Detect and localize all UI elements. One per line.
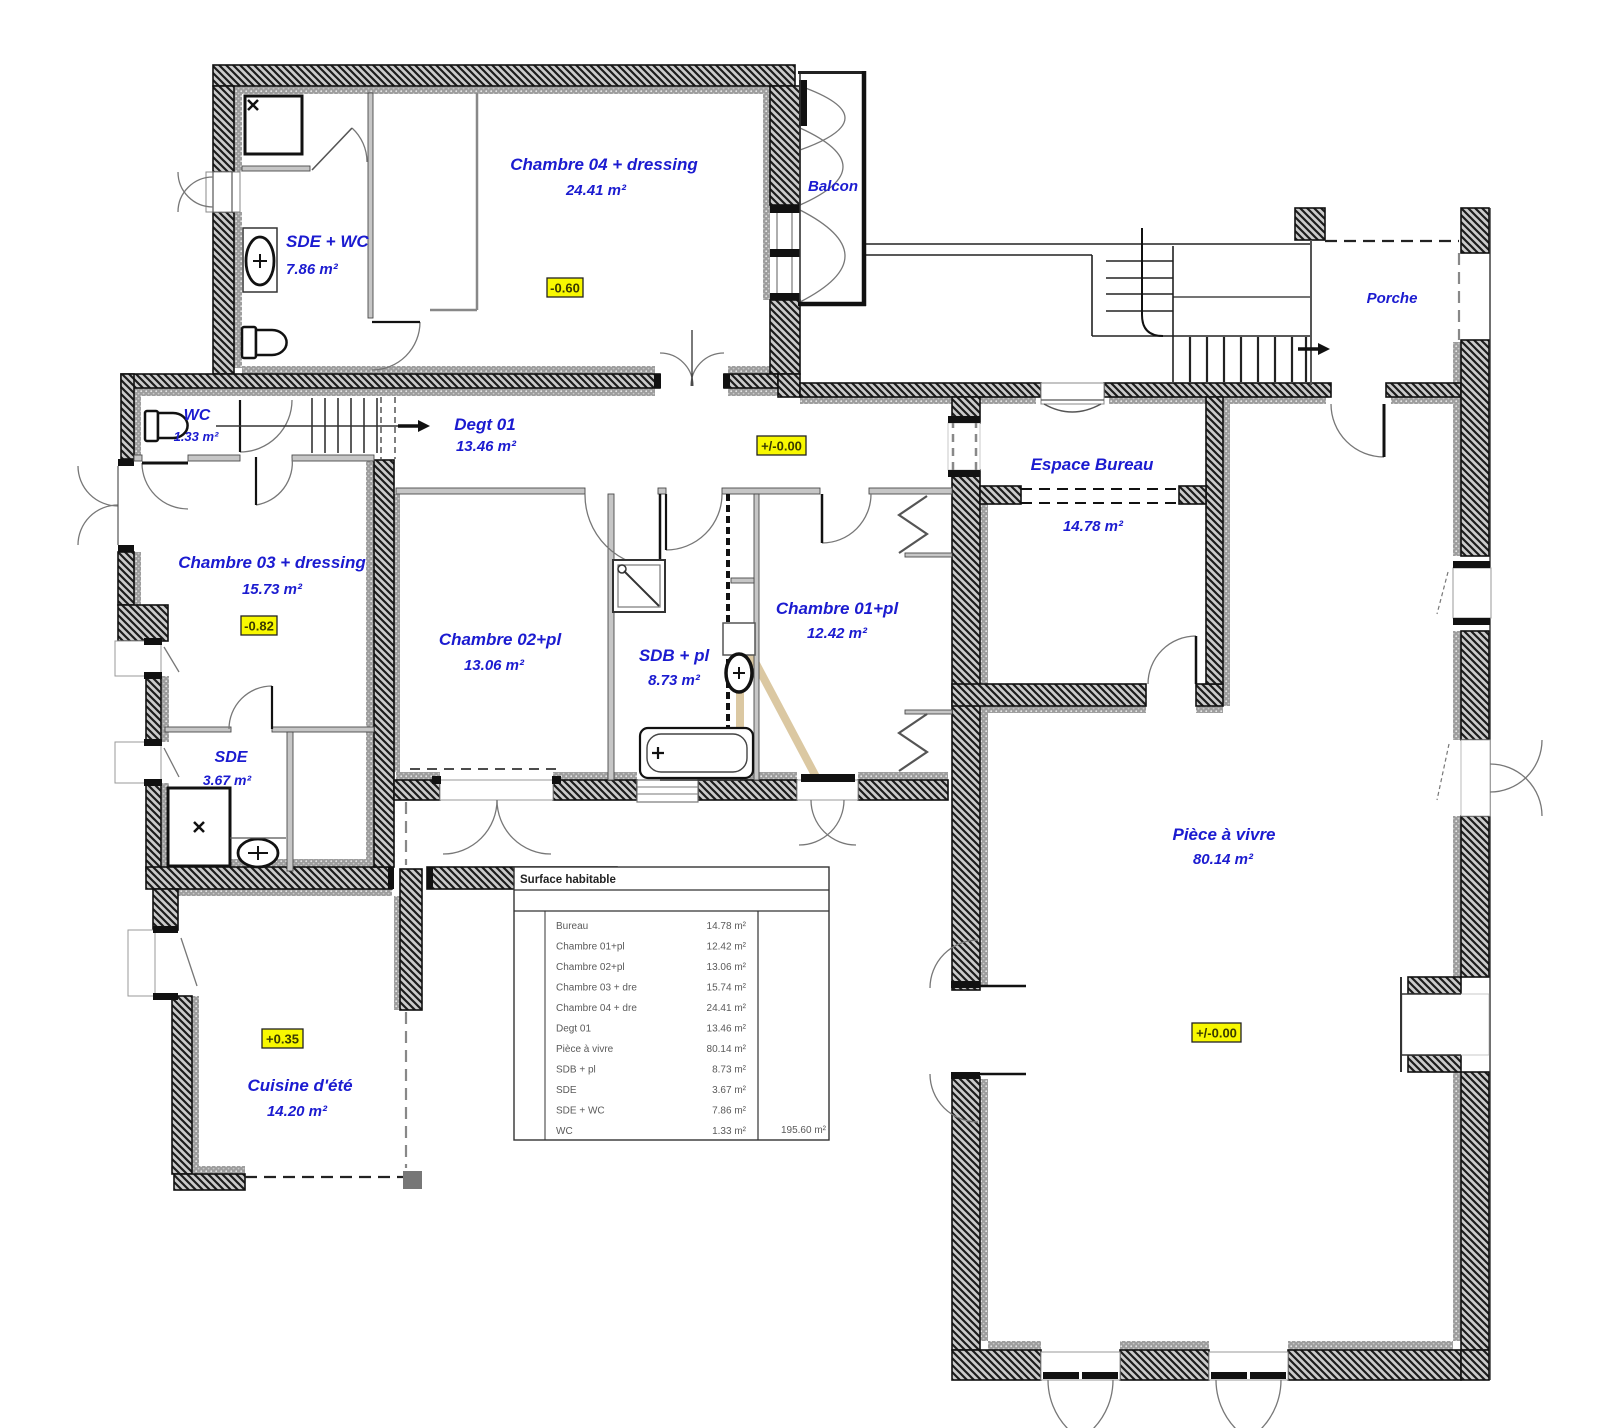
svg-text:13.46 m²: 13.46 m² [456,438,517,455]
svg-text:SDE: SDE [556,1085,577,1096]
svg-text:13.06 m²: 13.06 m² [707,962,747,973]
svg-text:15.73 m²: 15.73 m² [242,581,303,598]
svg-text:WC: WC [184,407,211,424]
svg-text:+0.35: +0.35 [266,1032,299,1047]
svg-text:Chambre 03 + dre: Chambre 03 + dre [556,983,637,994]
svg-text:13.06 m²: 13.06 m² [464,657,525,674]
svg-text:Cuisine d'été: Cuisine d'été [247,1076,352,1095]
svg-text:Balcon: Balcon [808,178,858,195]
svg-text:Chambre 02+pl: Chambre 02+pl [556,962,625,973]
svg-text:15.74 m²: 15.74 m² [707,983,747,994]
svg-text:WC: WC [556,1126,573,1137]
svg-text:Surface habitable: Surface habitable [520,874,616,886]
svg-text:Degt 01: Degt 01 [556,1024,591,1035]
svg-text:+/-0.00: +/-0.00 [1196,1026,1237,1041]
svg-text:8.73 m²: 8.73 m² [648,672,701,689]
svg-text:SDE + WC: SDE + WC [556,1106,605,1117]
svg-text:-0.82: -0.82 [244,619,274,634]
svg-text:1.33 m²: 1.33 m² [712,1126,747,1137]
svg-text:Espace Bureau: Espace Bureau [1031,455,1154,474]
svg-text:14.20 m²: 14.20 m² [267,1103,328,1120]
svg-text:Chambre 04 + dressing: Chambre 04 + dressing [510,155,698,174]
svg-text:Chambre 04 + dre: Chambre 04 + dre [556,1003,637,1014]
svg-text:-0.60: -0.60 [550,281,580,296]
svg-text:Pièce à vivre: Pièce à vivre [1172,825,1275,844]
svg-text:24.41 m²: 24.41 m² [565,182,627,199]
svg-text:12.42 m²: 12.42 m² [707,942,747,953]
svg-text:Chambre 01+pl: Chambre 01+pl [776,599,900,618]
svg-text:Bureau: Bureau [556,921,588,932]
svg-text:80.14 m²: 80.14 m² [1193,851,1254,868]
svg-text:1.33 m²: 1.33 m² [174,429,219,444]
svg-text:Porche: Porche [1367,290,1418,307]
svg-text:Chambre 02+pl: Chambre 02+pl [439,630,563,649]
svg-text:80.14 m²: 80.14 m² [707,1044,747,1055]
svg-text:SDB + pl: SDB + pl [556,1065,596,1076]
svg-text:14.78 m²: 14.78 m² [707,921,747,932]
svg-text:7.86 m²: 7.86 m² [712,1106,747,1117]
svg-text:14.78 m²: 14.78 m² [1063,518,1124,535]
svg-text:8.73 m²: 8.73 m² [712,1065,747,1076]
svg-text:Degt 01: Degt 01 [454,415,515,434]
svg-text:3.67 m²: 3.67 m² [712,1085,747,1096]
svg-text:SDE: SDE [215,749,249,766]
svg-text:3.67 m²: 3.67 m² [203,772,252,788]
svg-text:13.46 m²: 13.46 m² [707,1024,747,1035]
svg-text:+/-0.00: +/-0.00 [761,439,802,454]
svg-text:Chambre 01+pl: Chambre 01+pl [556,942,625,953]
svg-text:7.86 m²: 7.86 m² [286,261,339,278]
svg-text:24.41 m²: 24.41 m² [707,1003,747,1014]
svg-text:Chambre 03 + dressing: Chambre 03 + dressing [178,553,366,572]
svg-text:SDE + WC: SDE + WC [286,232,369,251]
svg-text:Pièce à vivre: Pièce à vivre [556,1044,614,1055]
svg-text:12.42 m²: 12.42 m² [807,625,868,642]
svg-text:SDB + pl: SDB + pl [639,646,711,665]
svg-text:195.60 m²: 195.60 m² [781,1125,827,1136]
